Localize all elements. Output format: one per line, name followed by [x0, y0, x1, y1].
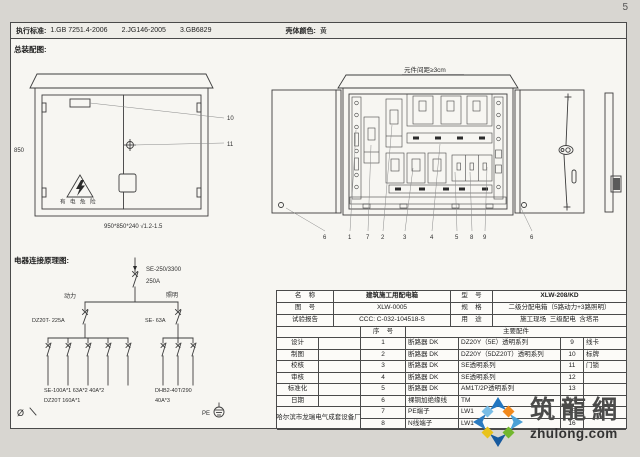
role-label: 制图: [277, 350, 319, 362]
din-rail-right: [494, 97, 503, 199]
use-label: 用 途: [451, 315, 493, 327]
pe-label: PE: [202, 411, 210, 417]
mounting-panel: [349, 94, 507, 209]
power-branch-note-1: SE-100A*1 63A*2 40A*2: [44, 388, 104, 394]
seq-no: 5: [361, 384, 406, 396]
signature-blank: [319, 396, 361, 408]
callout: 4: [430, 235, 434, 241]
callout-11: 11: [227, 142, 234, 148]
part-item: 断路器 DK: [406, 373, 459, 385]
branch-switches: [46, 338, 196, 385]
seq-no-2: 9: [561, 338, 584, 350]
standard-3: 3.GB6829: [180, 27, 212, 34]
din-rail-left: [352, 97, 361, 199]
bottom-channel: [350, 197, 506, 204]
role-label: 日期: [277, 396, 319, 408]
callout: 3: [403, 235, 407, 241]
signature-blank: [319, 361, 361, 373]
part-spec: AM1T/2P透明系列: [459, 384, 561, 396]
standard-1: 1.GB 7251.4-2006: [50, 27, 107, 34]
part-item-2: 标牌: [584, 350, 626, 362]
spacing-note: 元件间距≥3cm: [404, 65, 446, 74]
logo-name: 筑龍網: [530, 395, 623, 425]
standards-label: 执行标准:: [16, 26, 46, 36]
breaker-trio: [452, 155, 492, 181]
signature-blank: [319, 373, 361, 385]
part-item: 断路器 DK: [406, 338, 459, 350]
signature-blank: [319, 338, 361, 350]
seq-no: 6: [361, 396, 406, 408]
role-label: 校核: [277, 361, 319, 373]
callout: 6: [530, 235, 534, 241]
callout: 2: [381, 235, 385, 241]
signature-header-blank: [277, 327, 361, 338]
callout: 8: [470, 235, 474, 241]
power-branch-note-2: DZ20T 160A*1: [44, 398, 80, 404]
signature-blank: [319, 384, 361, 396]
part-item: 断路器 DK: [406, 361, 459, 373]
seq-no: 7: [361, 407, 406, 419]
role-label: 设计: [277, 338, 319, 350]
breaker-row-top: [407, 94, 492, 126]
cabinet-body: [343, 88, 513, 215]
seq-no-2: 12: [561, 373, 584, 385]
lighting-label: 照明: [166, 292, 178, 299]
drawing-no-value: XLW-0005: [334, 303, 451, 315]
part-item: 断路器 DK: [406, 384, 459, 396]
shell-color-label: 壳体颜色:: [285, 26, 315, 36]
model-value: XLW-208/KD: [493, 291, 626, 303]
part-item-2: [584, 384, 626, 396]
page-number: 5: [622, 2, 628, 13]
assembly-section-title: 总装配图:: [14, 44, 47, 55]
part-item: 断路器 DK: [406, 350, 459, 362]
role-label: 审核: [277, 373, 319, 385]
open-door-left: [272, 90, 341, 213]
seq-no: 4: [361, 373, 406, 385]
seq-no: 3: [361, 361, 406, 373]
name-value: 建筑施工用配电箱: [334, 291, 451, 303]
cabinet-cap: [30, 74, 213, 88]
wire-duct: [389, 185, 492, 193]
standards-header-bar: 执行标准: 1.GB 7251.4-2006 2.JG146-2005 3.GB…: [11, 23, 626, 39]
lightning-icon: [76, 180, 85, 196]
callout: 1: [348, 235, 352, 241]
seq-header: 序 号: [361, 327, 406, 338]
lock-box: [119, 174, 136, 192]
model-label: 型 号: [451, 291, 493, 303]
seq-no: 8: [361, 419, 406, 431]
hinge: [197, 103, 201, 112]
lighting-branch-note-1: DHB2-40T/290: [155, 388, 192, 394]
zhulong-logo: 筑龍網 zhulong.com: [471, 395, 623, 449]
cabinet-body: [35, 88, 208, 216]
hinge: [42, 103, 46, 112]
part-spec: SE透明系列: [459, 373, 561, 385]
drawing-page: { "page": { "number": "5" }, "header": {…: [0, 0, 640, 457]
power-label: 动力: [64, 292, 76, 300]
report-value: CCC: C-032-104518-S: [334, 315, 451, 327]
ground-icon: [214, 403, 224, 417]
power-breaker-model: DZ20T- 225A: [32, 318, 65, 324]
use-value: 施工现场 三级配电 含塔吊: [493, 315, 626, 327]
part-item-2: 线卡: [584, 338, 626, 350]
part-item: N线端子: [406, 419, 459, 431]
signature-blank: [319, 350, 361, 362]
lighting-breaker-model: SE- 63A: [145, 318, 166, 324]
warning-text: 有 电 危 险: [60, 198, 97, 206]
role-label: 标准化: [277, 384, 319, 396]
height-dimension: 850: [14, 148, 25, 154]
seq-no-2: 11: [561, 361, 584, 373]
lighting-branch-note-2: 40A*3: [155, 398, 170, 404]
callout: 7: [366, 235, 370, 241]
spec-value: 二级分配电箱（5路动力+3路照明）: [493, 303, 626, 315]
name-label: 名 称: [277, 291, 334, 303]
part-item-2: [584, 373, 626, 385]
callout: 6: [323, 235, 327, 241]
standard-2: 2.JG146-2005: [122, 27, 166, 34]
spec-label: 规 格: [451, 303, 493, 315]
dimensions-note: 950*850*240 √1.2-1.5: [104, 223, 163, 230]
breaker: [386, 153, 404, 183]
part-spec: SE透明系列: [459, 361, 561, 373]
phase-symbol: Ø: [17, 408, 24, 418]
pinwheel-icon: [471, 395, 525, 449]
seq-no: 2: [361, 350, 406, 362]
hinge: [197, 188, 201, 197]
breaker: [407, 153, 425, 183]
hinge: [42, 188, 46, 197]
seq-no-2: 10: [561, 350, 584, 362]
manufacturer-name: 哈尔滨市龙瑞电气成套设备厂: [277, 407, 361, 430]
front-view-drawing: 850 有 电 危 险 950*850*240 √1.2-1.5 10 11: [12, 60, 252, 236]
logo-domain: zhulong.com: [530, 426, 623, 441]
seq-no-2: 13: [561, 384, 584, 396]
internal-view-drawing: 元件间距≥3cm: [255, 60, 627, 245]
part-item: 裸铜加绝缘线: [406, 396, 459, 408]
wiring-schematic: SE-250/3300 250A 动力 照明 DZ20T- 225A SE- 6…: [12, 252, 276, 430]
parts-header: 主要配件: [406, 327, 626, 338]
callout-10: 10: [227, 116, 234, 122]
part-spec: DZ20Y（5DZ20T）透明系列: [459, 350, 561, 362]
callout: 9: [483, 235, 487, 241]
part-item: PE端子: [406, 407, 459, 419]
seq-no: 1: [361, 338, 406, 350]
side-profile: [605, 93, 613, 212]
cabinet-cap: [338, 75, 518, 88]
part-spec: DZ20Y（5E）透明系列: [459, 338, 561, 350]
shell-color-value: 黄: [320, 26, 327, 36]
open-door-right: [515, 90, 584, 213]
main-breaker-rating: 250A: [146, 279, 160, 285]
report-label: 试验报告: [277, 315, 334, 327]
breaker: [386, 99, 402, 147]
name-plate: [70, 99, 90, 107]
part-item-2: 门锁: [584, 361, 626, 373]
main-breaker-model: SE-250/3300: [146, 267, 182, 273]
drawing-no-label: 图 号: [277, 303, 334, 315]
callout: 5: [455, 235, 459, 241]
